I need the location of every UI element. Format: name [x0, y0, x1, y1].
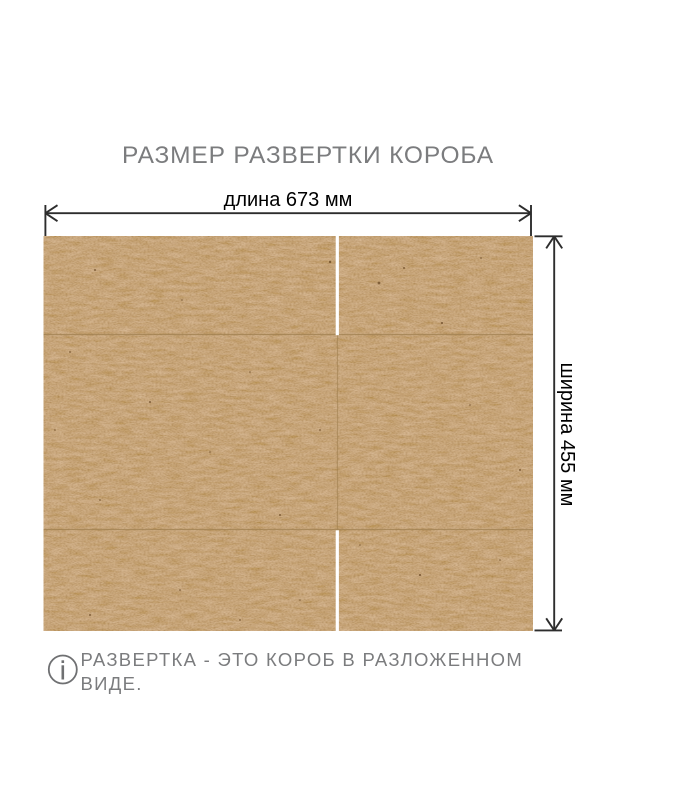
svg-text:РАЗВЕРТКА - ЭТО КОРОБ В РАЗЛОЖ: РАЗВЕРТКА - ЭТО КОРОБ В РАЗЛОЖЕННОМ [81, 649, 524, 670]
svg-text:ширина 455 мм: ширина 455 мм [556, 363, 578, 507]
svg-text:РАЗМЕР РАЗВЕРТКИ КОРОБА: РАЗМЕР РАЗВЕРТКИ КОРОБА [122, 142, 494, 169]
svg-text:ВИДЕ.: ВИДЕ. [81, 673, 143, 694]
svg-text:длина 673 мм: длина 673 мм [224, 189, 353, 211]
